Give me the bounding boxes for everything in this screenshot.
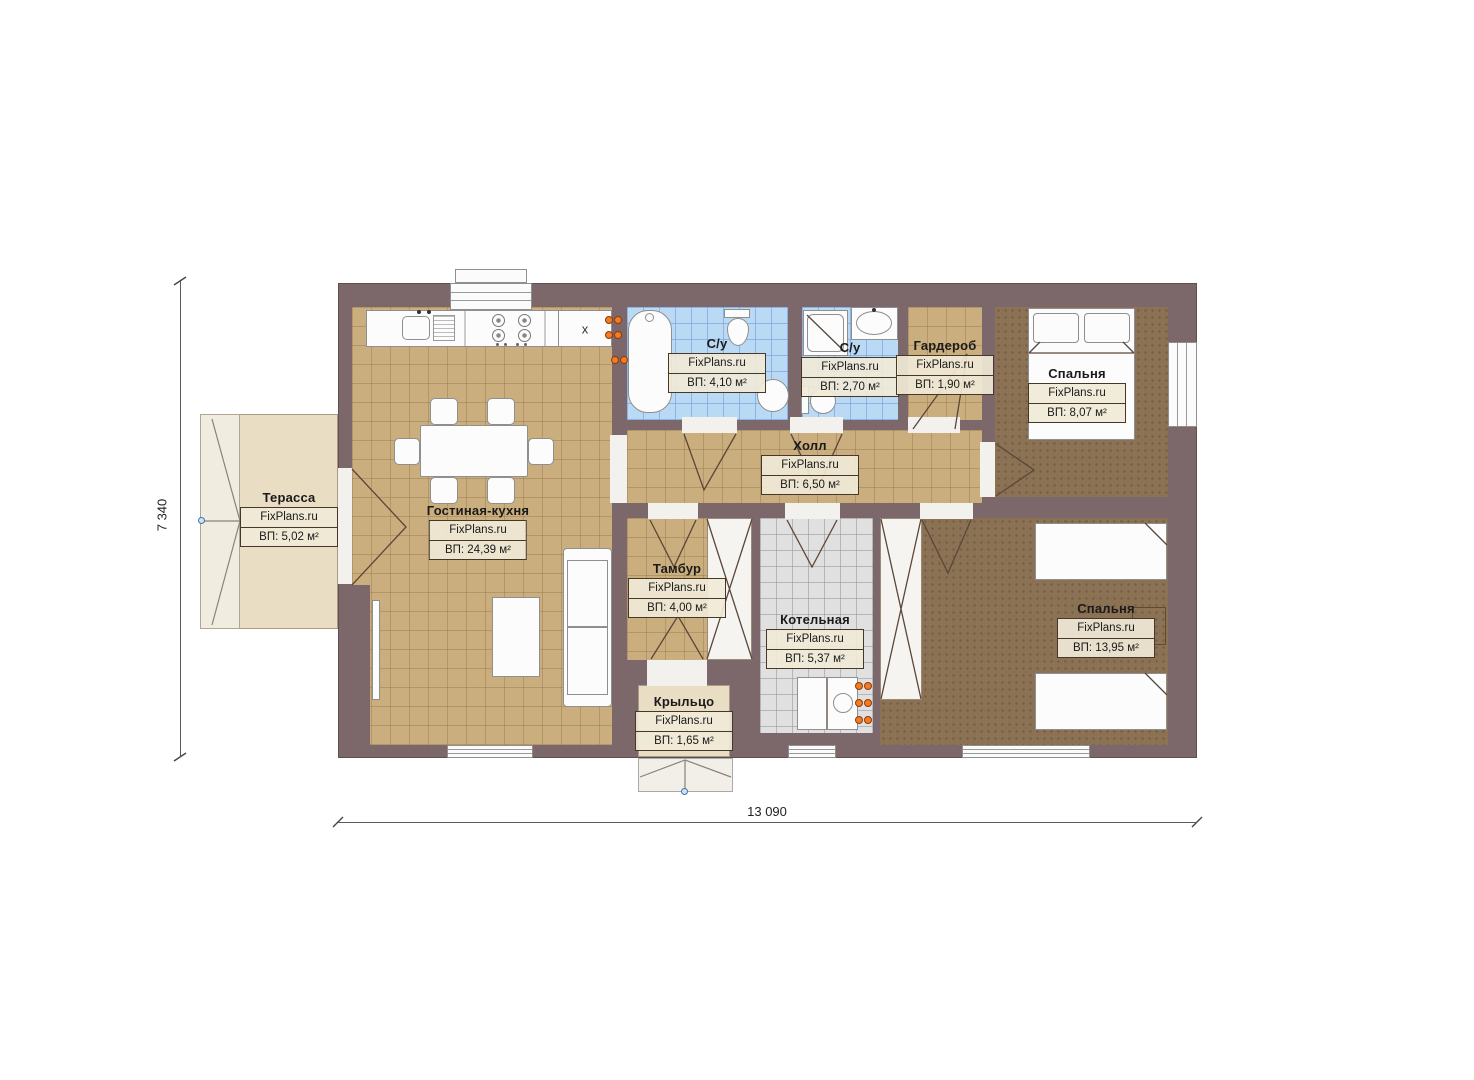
- coffee-table: [492, 597, 540, 677]
- tambour-door-opening: [648, 503, 698, 519]
- room-label-bedroom1: Спальня FixPlans.ru ВП: 8,07 м²: [1028, 366, 1126, 423]
- bedroom1-door-opening: [980, 442, 995, 497]
- stove-knob: [496, 343, 499, 346]
- brand-label: FixPlans.ru: [1028, 383, 1126, 404]
- dining-chair: [487, 477, 515, 504]
- stove-burner: [518, 329, 531, 342]
- brand-label: FixPlans.ru: [896, 355, 994, 376]
- boiler-dial: [833, 693, 853, 713]
- radiator: [855, 699, 872, 707]
- toilet1-tank: [724, 309, 750, 318]
- room-label-wardrobe: Гардероб FixPlans.ru ВП: 1,90 м²: [896, 338, 994, 395]
- radiator: [855, 682, 872, 690]
- area-label: ВП: 5,37 м²: [766, 649, 864, 670]
- dining-table: [420, 425, 528, 477]
- dimension-line-horizontal: [338, 822, 1197, 823]
- kitchen-faucet-dot: [427, 310, 431, 314]
- area-label: ВП: 5,02 м²: [240, 527, 338, 548]
- room-label-tambour: Тамбур FixPlans.ru ВП: 4,00 м²: [628, 561, 726, 618]
- stove-knob: [504, 343, 507, 346]
- bath2-sink: [856, 311, 892, 335]
- room-name: Терасса: [263, 490, 316, 505]
- radiator: [611, 356, 628, 364]
- porch-steps: [638, 758, 733, 792]
- area-label: ВП: 8,07 м²: [1028, 403, 1126, 424]
- stove-knob: [524, 343, 527, 346]
- terrace-door-opening: [338, 468, 352, 584]
- closet-shaft-2: [880, 518, 922, 700]
- room-name: С/у: [840, 340, 861, 355]
- living-window-bottom: [447, 745, 533, 758]
- brand-label: FixPlans.ru: [761, 455, 859, 476]
- bed-pillow: [1033, 313, 1079, 343]
- stove-knob: [516, 343, 519, 346]
- living-hall-opening: [610, 435, 627, 503]
- bed-single-1: [1035, 523, 1167, 580]
- dining-chair: [394, 438, 420, 465]
- room-label-porch: Крыльцо FixPlans.ru ВП: 1,65 м²: [635, 694, 733, 751]
- kitchen-sink-drainer: [433, 315, 455, 341]
- brand-label: FixPlans.ru: [628, 578, 726, 599]
- area-label: ВП: 2,70 м²: [801, 377, 899, 398]
- marker-dot-porch: [681, 788, 688, 795]
- wall-pier: [352, 585, 370, 745]
- dimension-width-label: 13 090: [747, 804, 787, 819]
- area-label: ВП: 6,50 м²: [761, 475, 859, 496]
- room-name: Гардероб: [913, 338, 976, 353]
- bedroom2-window-bottom: [962, 745, 1090, 758]
- radiator: [855, 716, 872, 724]
- bathtub-faucet: [645, 313, 654, 322]
- stove-burner: [492, 314, 505, 327]
- room-label-bath2: С/у FixPlans.ru ВП: 2,70 м²: [801, 340, 899, 397]
- room-label-boiler: Котельная FixPlans.ru ВП: 5,37 м²: [766, 612, 864, 669]
- area-label: ВП: 24,39 м²: [429, 540, 527, 561]
- brand-label: FixPlans.ru: [635, 711, 733, 732]
- bed-pillow: [1084, 313, 1130, 343]
- stove-burner: [492, 329, 505, 342]
- dining-chair: [487, 398, 515, 425]
- brand-label: FixPlans.ru: [240, 507, 338, 528]
- bedroom2-door-opening: [920, 503, 973, 519]
- area-label: ВП: 1,65 м²: [635, 731, 733, 752]
- room-label-living-kitchen: Гостиная-кухня FixPlans.ru ВП: 24,39 м²: [427, 503, 529, 560]
- room-name: Котельная: [780, 612, 850, 627]
- brand-label: FixPlans.ru: [801, 357, 899, 378]
- room-label-hall: Холл FixPlans.ru ВП: 6,50 м²: [761, 438, 859, 495]
- bathtub: [628, 310, 672, 413]
- bath2-door-opening: [790, 417, 843, 433]
- room-name: Спальня: [1048, 366, 1106, 381]
- area-label: ВП: 4,00 м²: [628, 598, 726, 619]
- marker-dot-terrace: [198, 517, 205, 524]
- dimension-line-vertical: [180, 281, 181, 757]
- room-label-bedroom2: Спальня FixPlans.ru ВП: 13,95 м²: [1057, 601, 1155, 658]
- bed-single-2: [1035, 673, 1167, 730]
- wardrobe-door-opening: [908, 417, 960, 433]
- dining-chair: [528, 438, 554, 465]
- radiator: [605, 331, 622, 339]
- area-label: ВП: 1,90 м²: [896, 375, 994, 396]
- living-wall-radiator: [372, 600, 380, 700]
- room-name: Крыльцо: [654, 694, 715, 709]
- kitchen-window: [450, 283, 532, 310]
- sofa-cushion: [567, 560, 608, 627]
- brand-label: FixPlans.ru: [766, 629, 864, 650]
- radiator: [605, 316, 622, 324]
- kitchen-cabinet-x-label: x: [582, 322, 589, 337]
- bedroom1-window-right: [1168, 342, 1197, 427]
- bath2-faucet-dot: [872, 308, 876, 312]
- sofa-cushion: [567, 627, 608, 695]
- bath1-door-opening: [682, 417, 737, 433]
- kitchen-faucet-dot: [417, 310, 421, 314]
- room-name: Спальня: [1077, 601, 1135, 616]
- dining-chair: [430, 477, 458, 504]
- stove-burner: [518, 314, 531, 327]
- room-label-bath1: С/у FixPlans.ru ВП: 4,10 м²: [668, 336, 766, 393]
- room-label-terrace: Терасса FixPlans.ru ВП: 5,02 м²: [240, 490, 338, 547]
- area-label: ВП: 4,10 м²: [668, 373, 766, 394]
- dining-chair: [430, 398, 458, 425]
- brand-label: FixPlans.ru: [668, 353, 766, 374]
- area-label: ВП: 13,95 м²: [1057, 638, 1155, 659]
- room-name: Тамбур: [653, 561, 701, 576]
- brand-label: FixPlans.ru: [429, 520, 527, 541]
- kitchen-window-sill: [455, 269, 527, 283]
- brand-label: FixPlans.ru: [1057, 618, 1155, 639]
- boiler-door-opening: [785, 503, 840, 519]
- kitchen-sink: [402, 316, 430, 340]
- room-name: С/у: [707, 336, 728, 351]
- room-name: Гостиная-кухня: [427, 503, 529, 518]
- terrace-steps: [200, 414, 240, 629]
- floor-plan-canvas: x: [0, 0, 1474, 1080]
- boiler-window-bottom: [788, 745, 836, 758]
- porch-entry-door-opening: [647, 660, 707, 686]
- room-name: Холл: [793, 438, 826, 453]
- dimension-height-label: 7 340: [155, 499, 170, 532]
